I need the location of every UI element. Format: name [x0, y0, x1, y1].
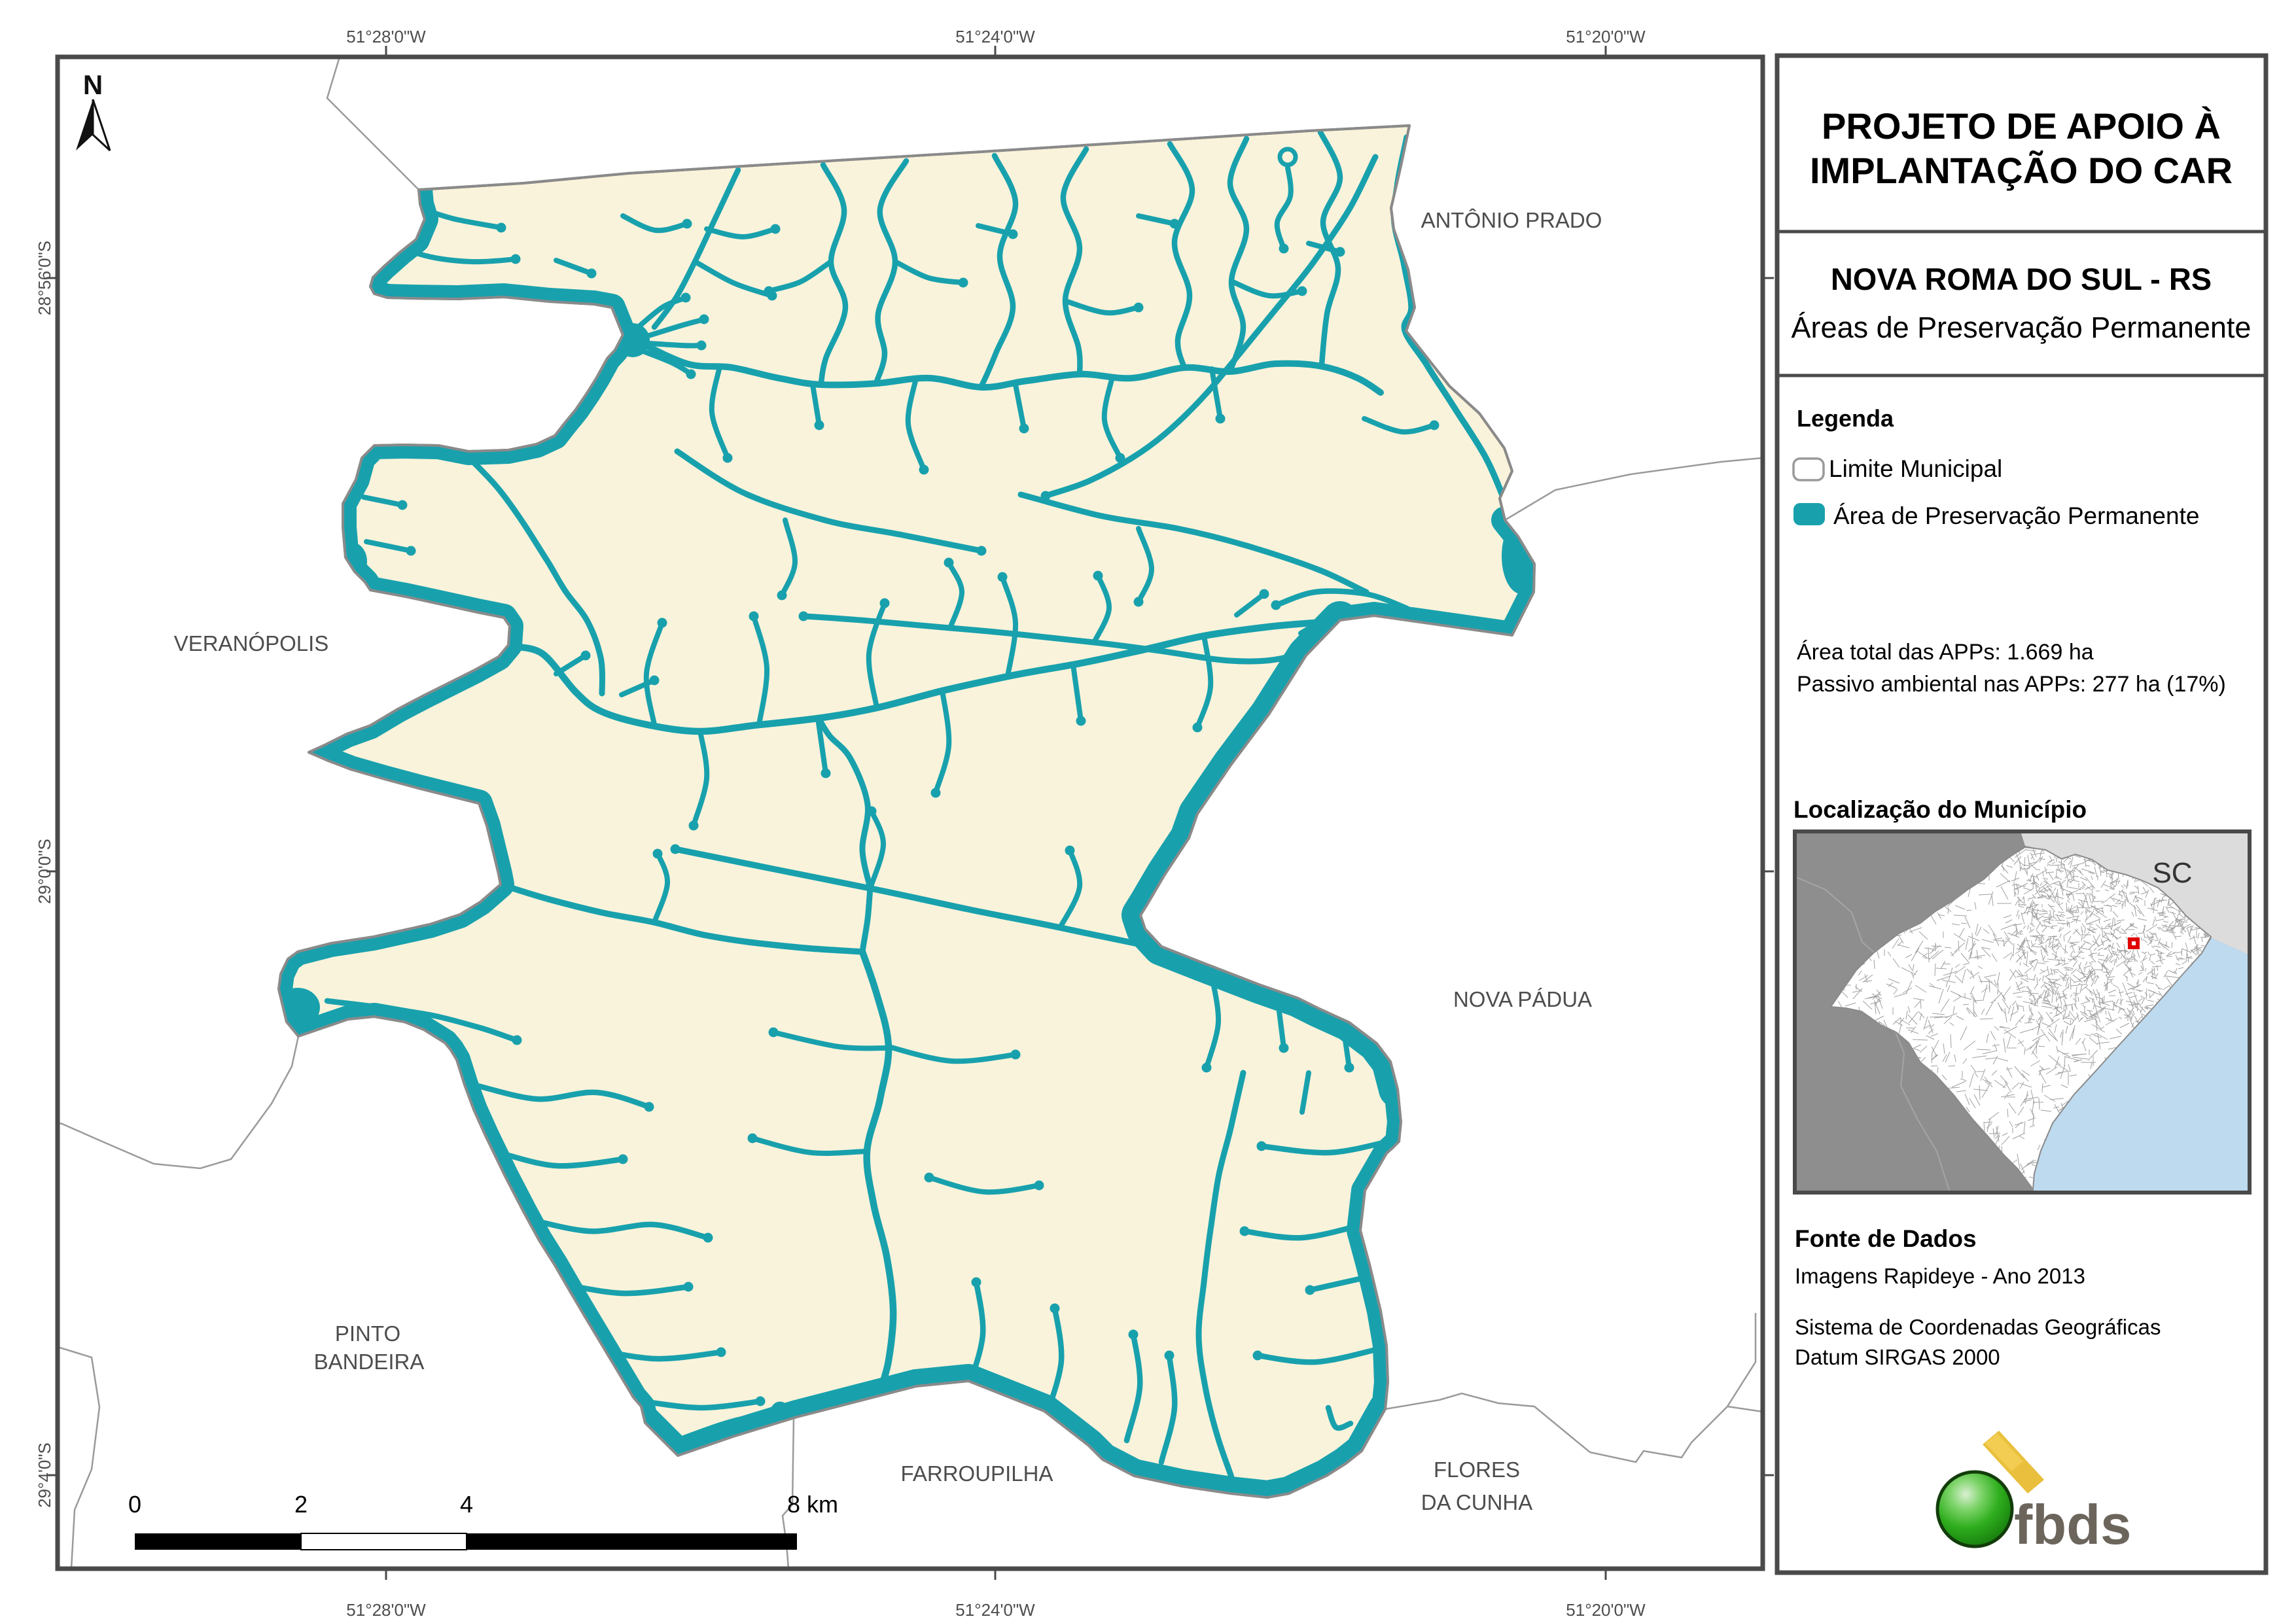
- svg-text:4: 4: [460, 1491, 473, 1518]
- svg-text:Imagens Rapideye - Ano 2013: Imagens Rapideye - Ano 2013: [1795, 1264, 2085, 1288]
- svg-text:51°28'0"W: 51°28'0"W: [346, 1600, 426, 1620]
- svg-text:Legenda: Legenda: [1797, 405, 1894, 432]
- svg-text:Localização do Município: Localização do Município: [1793, 796, 2087, 823]
- svg-text:PINTO: PINTO: [335, 1321, 400, 1346]
- svg-text:Datum SIRGAS 2000: Datum SIRGAS 2000: [1795, 1345, 2000, 1369]
- svg-text:N: N: [83, 69, 103, 100]
- svg-text:NOVA ROMA DO SUL - RS: NOVA ROMA DO SUL - RS: [1831, 262, 2212, 296]
- svg-text:51°20'0"W: 51°20'0"W: [1566, 27, 1646, 46]
- svg-text:28°56'0"S: 28°56'0"S: [35, 241, 54, 315]
- svg-text:ANTÔNIO PRADO: ANTÔNIO PRADO: [1421, 208, 1602, 232]
- svg-text:SC: SC: [2152, 857, 2192, 889]
- svg-text:Sistema de Coordenadas Geográf: Sistema de Coordenadas Geográficas: [1795, 1315, 2161, 1339]
- svg-text:0: 0: [128, 1491, 141, 1518]
- svg-text:Passivo ambiental nas APPs: 27: Passivo ambiental nas APPs: 277 ha (17%): [1797, 672, 2226, 697]
- svg-text:BANDEIRA: BANDEIRA: [314, 1350, 425, 1374]
- svg-text:Área total das APPs: 1.669 ha: Área total das APPs: 1.669 ha: [1797, 640, 2094, 665]
- svg-text:Áreas de Preservação Permanent: Áreas de Preservação Permanente: [1792, 311, 2252, 344]
- svg-text:fbds: fbds: [2014, 1494, 2131, 1556]
- svg-text:51°24'0"W: 51°24'0"W: [955, 27, 1035, 46]
- svg-text:Fonte de Dados: Fonte de Dados: [1795, 1225, 1977, 1252]
- svg-text:29°4'0"S: 29°4'0"S: [35, 1442, 54, 1508]
- svg-text:8 km: 8 km: [787, 1491, 838, 1518]
- svg-text:VERANÓPOLIS: VERANÓPOLIS: [174, 631, 329, 655]
- svg-text:51°28'0"W: 51°28'0"W: [346, 27, 426, 46]
- svg-text:51°20'0"W: 51°20'0"W: [1566, 1600, 1646, 1620]
- svg-text:DA CUNHA: DA CUNHA: [1421, 1490, 1533, 1514]
- svg-text:Área de Preservação Permanente: Área de Preservação Permanente: [1833, 502, 2199, 529]
- svg-text:FARROUPILHA: FARROUPILHA: [901, 1461, 1053, 1486]
- svg-text:NOVA PÁDUA: NOVA PÁDUA: [1453, 987, 1592, 1011]
- svg-text:Limite Municipal: Limite Municipal: [1829, 455, 2002, 482]
- svg-text:PROJETO DE APOIO À: PROJETO DE APOIO À: [1822, 105, 2221, 147]
- svg-text:2: 2: [294, 1491, 308, 1518]
- svg-text:51°24'0"W: 51°24'0"W: [955, 1600, 1035, 1620]
- svg-text:29°0'0"S: 29°0'0"S: [35, 839, 54, 904]
- svg-text:IMPLANTAÇÃO DO CAR: IMPLANTAÇÃO DO CAR: [1810, 150, 2233, 191]
- svg-text:FLORES: FLORES: [1434, 1457, 1520, 1482]
